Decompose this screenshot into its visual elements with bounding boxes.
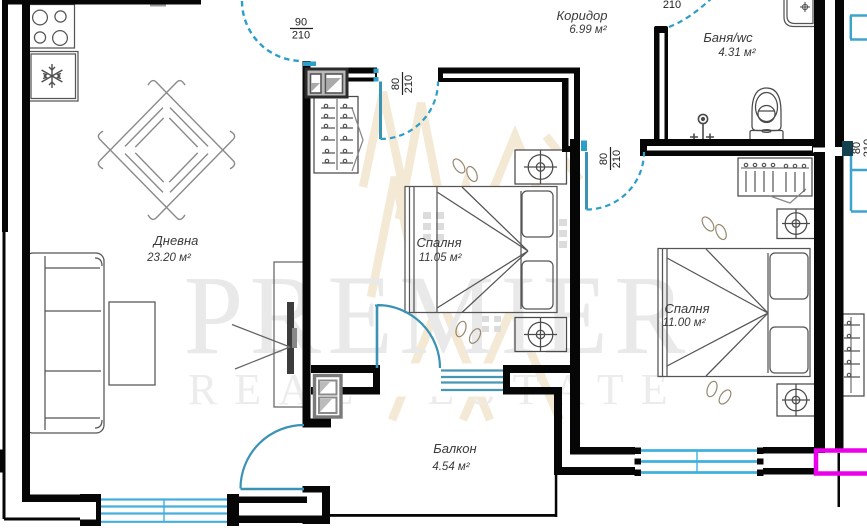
svg-text:23.20 м²: 23.20 м² <box>146 252 192 264</box>
svg-text:210: 210 <box>611 150 623 168</box>
svg-text:210: 210 <box>663 0 681 11</box>
svg-text:Баня/wc: Баня/wc <box>703 30 753 45</box>
svg-text:4.31 м²: 4.31 м² <box>718 47 756 59</box>
svg-text:210: 210 <box>862 139 867 157</box>
svg-text:Дневна: Дневна <box>152 233 199 248</box>
svg-text:80: 80 <box>390 78 402 90</box>
svg-text:Спалня: Спалня <box>416 235 461 250</box>
svg-text:11.00 м²: 11.00 м² <box>663 317 707 329</box>
svg-text:6.99 м²: 6.99 м² <box>569 24 607 36</box>
svg-text:80: 80 <box>598 153 610 165</box>
svg-text:Балкон: Балкон <box>433 441 476 456</box>
svg-text:210: 210 <box>403 75 415 93</box>
svg-text:Коридор: Коридор <box>557 8 608 23</box>
svg-text:210: 210 <box>292 30 310 42</box>
svg-text:11.05 м²: 11.05 м² <box>419 252 463 264</box>
svg-text:90: 90 <box>295 17 307 29</box>
svg-text:Спалня: Спалня <box>664 301 709 316</box>
svg-text:4.54 м²: 4.54 м² <box>432 461 470 473</box>
